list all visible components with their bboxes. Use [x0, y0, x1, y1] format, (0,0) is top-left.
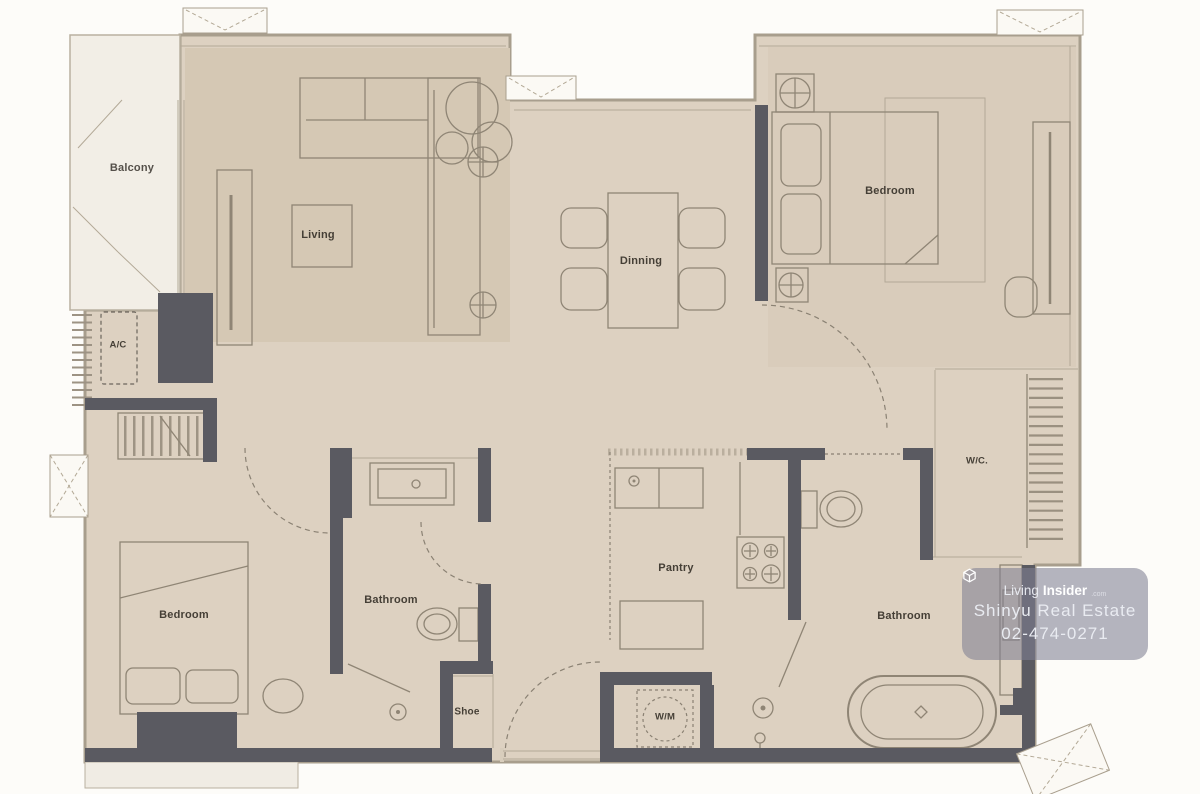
watermark: LivingInsider.com Shinyu Real Estate 02-… [962, 568, 1148, 660]
column-marker [183, 8, 267, 33]
living-zone [185, 48, 510, 342]
room-label-dining: Dinning [620, 255, 662, 267]
room-label-bedroom-bottom: Bedroom [159, 609, 209, 621]
room-label-ac: A/C [110, 340, 127, 351]
column-marker [997, 10, 1083, 35]
brand-suffix: Insider [1043, 584, 1087, 598]
room-label-wm: W/M [655, 712, 675, 723]
column-marker [506, 76, 576, 100]
ledge-strip [85, 762, 298, 788]
headboard [137, 712, 237, 752]
floorplan-canvas: Balcony Living Dinning Bedroom W/C. A/C … [0, 0, 1200, 794]
room-label-bedroom-top: Bedroom [865, 185, 915, 197]
room-label-wc: W/C. [966, 456, 988, 467]
watermark-phone: 02-474-0271 [1001, 623, 1108, 644]
room-label-living: Living [301, 229, 335, 241]
room-label-bathroom-mid: Bathroom [364, 594, 418, 606]
room-label-pantry: Pantry [658, 562, 693, 574]
room-label-balcony: Balcony [110, 162, 154, 174]
watermark-agency: Shinyu Real Estate [974, 600, 1137, 621]
cube-box-icon [962, 568, 977, 583]
brand-tld: .com [1091, 591, 1106, 598]
floorplan-svg [0, 0, 1200, 794]
brand-prefix: Living [1004, 584, 1039, 598]
room-label-bathroom-right: Bathroom [877, 610, 931, 622]
watermark-brand: LivingInsider.com [1004, 584, 1107, 598]
room-label-shoe: Shoe [454, 707, 479, 718]
